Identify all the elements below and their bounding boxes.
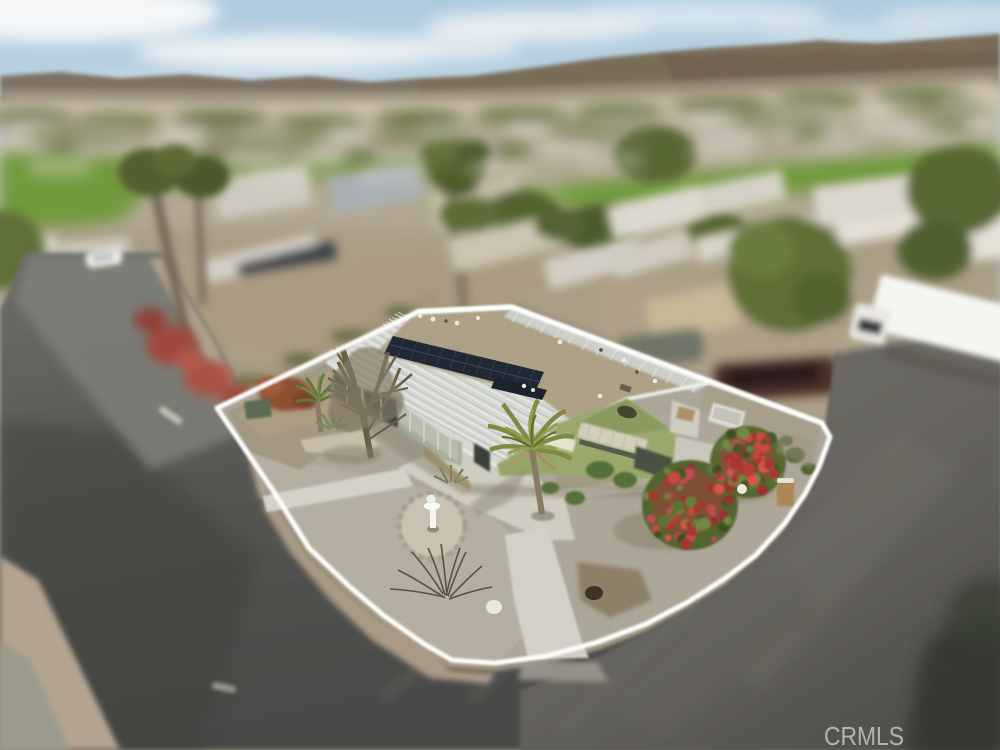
svg-text:CRMLS: CRMLS <box>824 721 904 750</box>
